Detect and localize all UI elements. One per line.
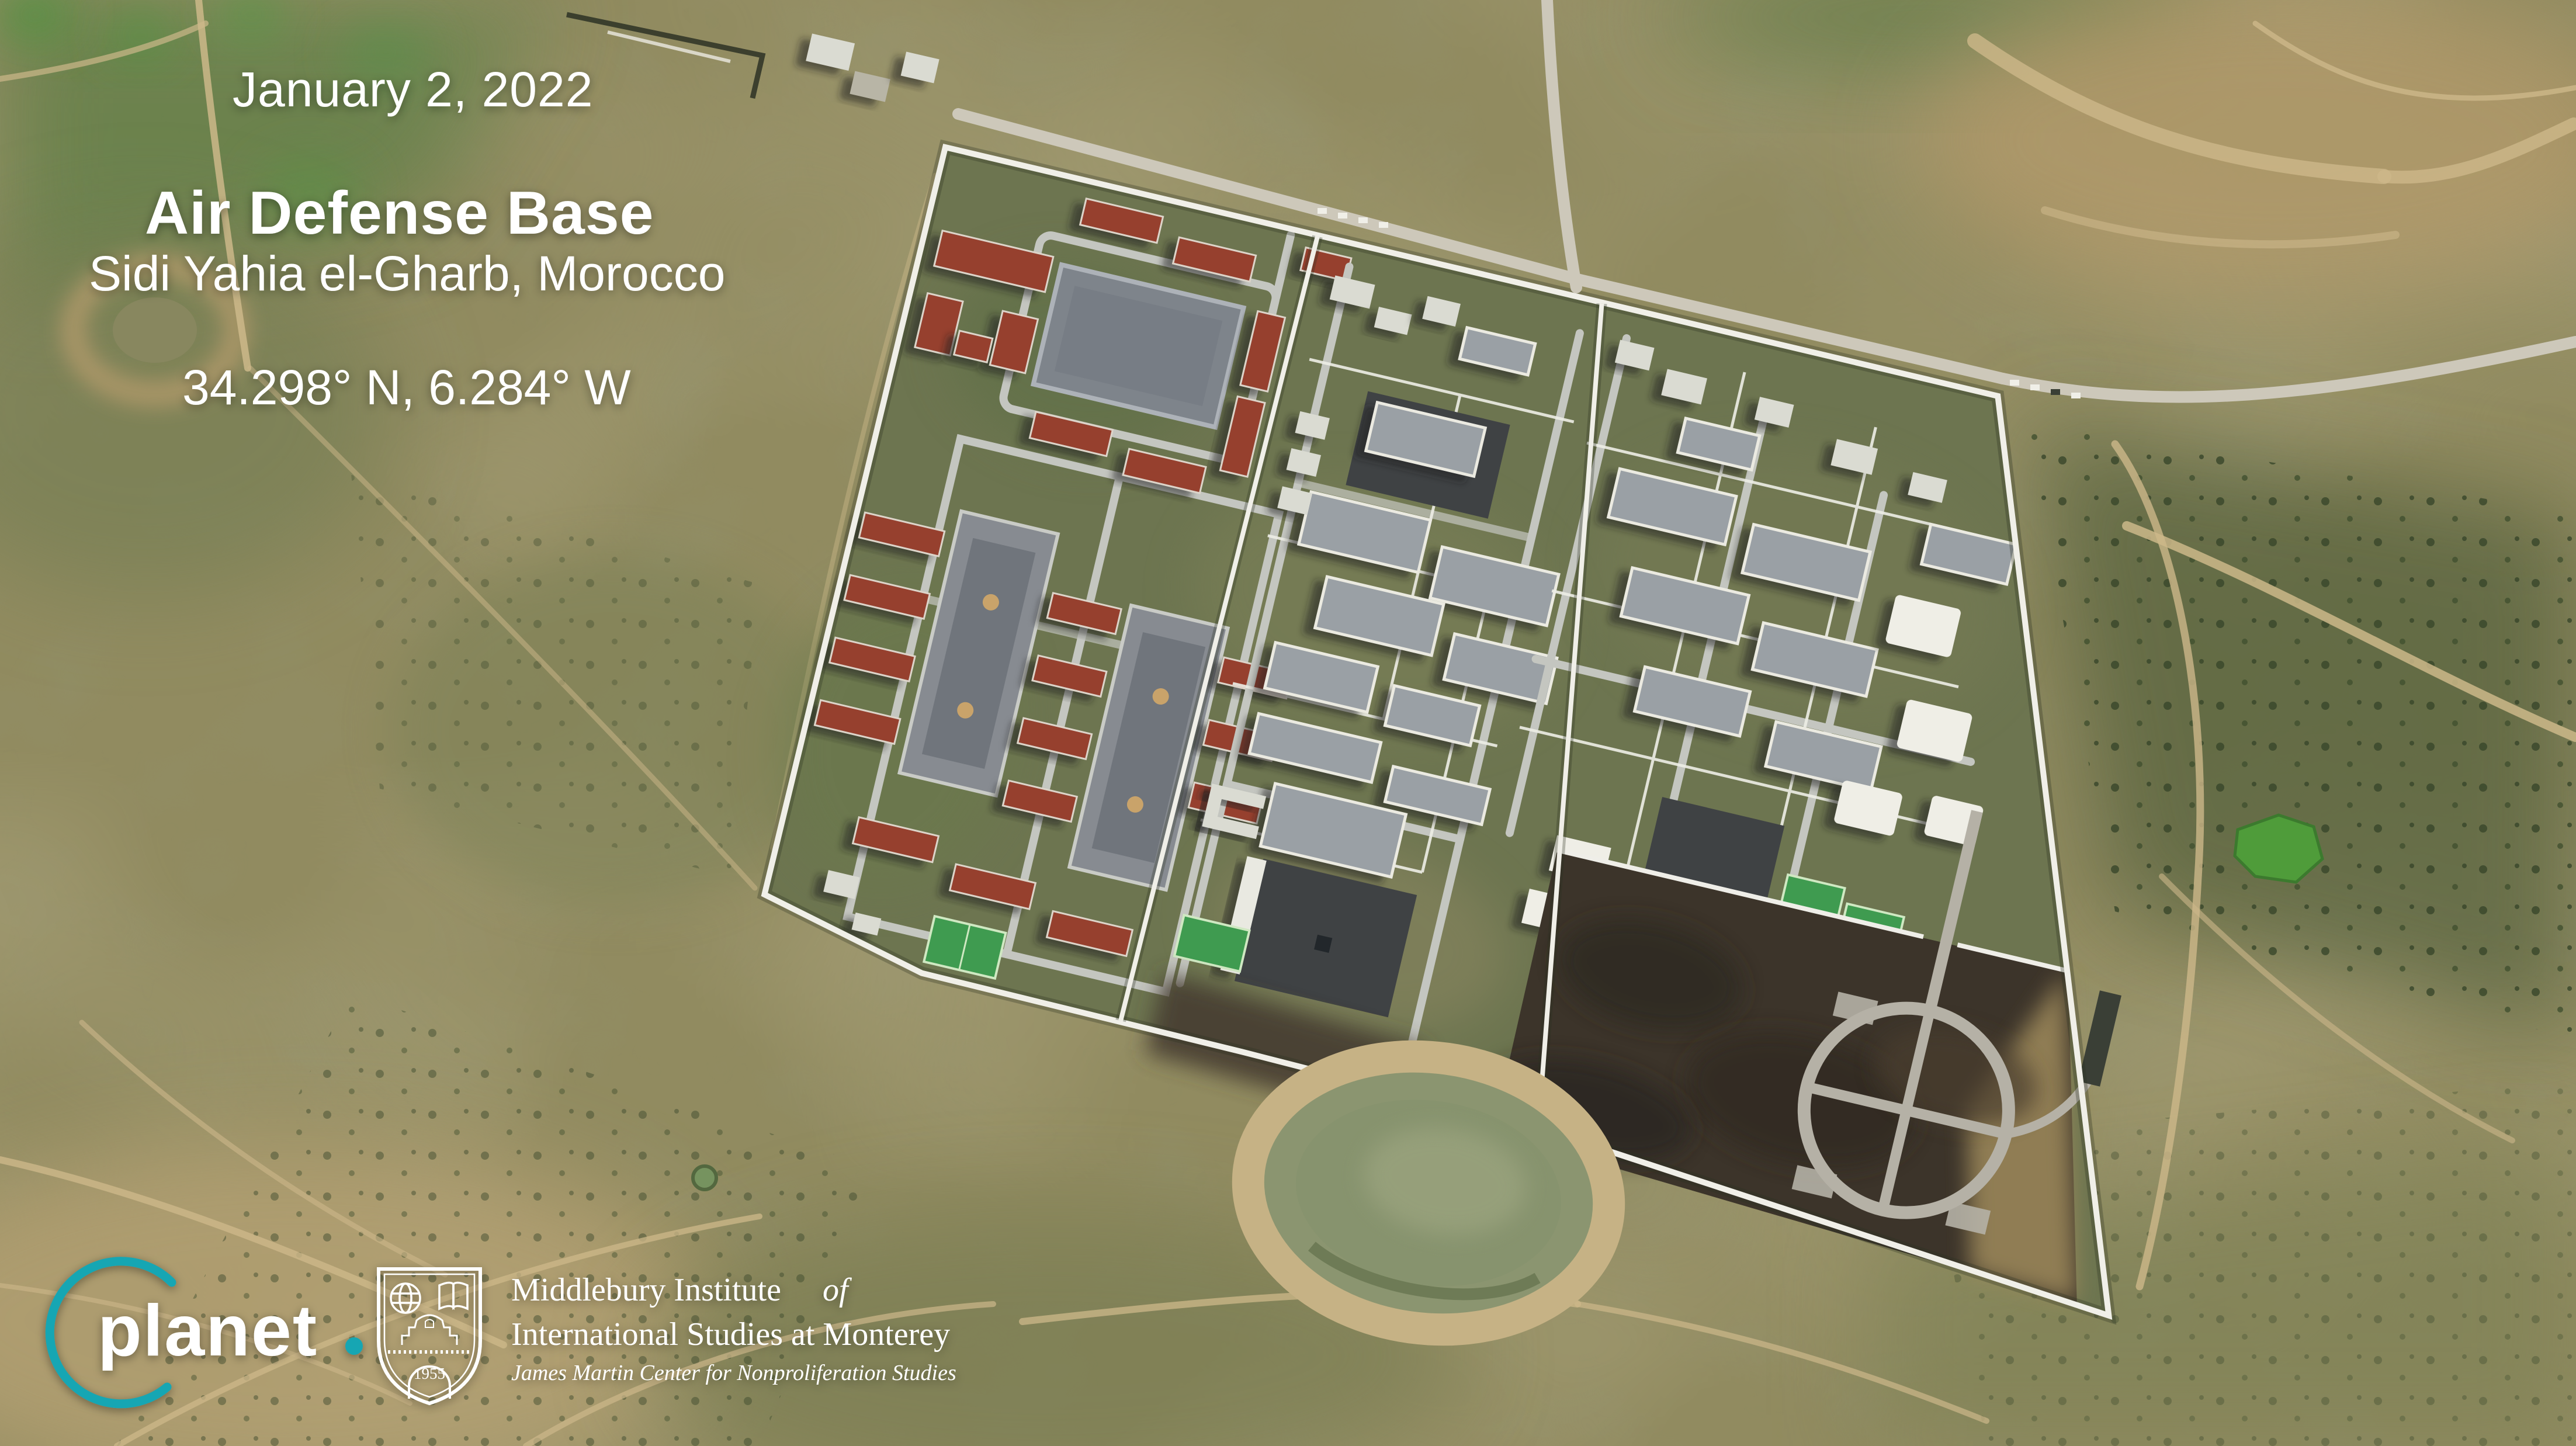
location-label: Sidi Yahia el-Gharb, Morocco (89, 246, 725, 301)
institute-name-line1: Middlebury Institute (511, 1272, 781, 1308)
satellite-annotation-graphic: January 2, 2022 Air Defense Base Sidi Ya… (0, 0, 2576, 1446)
date-label: January 2, 2022 (233, 62, 593, 117)
shield-year-label: 1955 (414, 1365, 445, 1382)
coordinates-label: 34.298° N, 6.284° W (182, 360, 631, 415)
small-pond (693, 1166, 716, 1190)
institute-name-line2: International Studies at Monterey (511, 1316, 950, 1353)
center-name-line: James Martin Center for Nonproliferation… (511, 1361, 956, 1385)
planet-wordmark: planet (98, 1291, 318, 1371)
institute-name-line1-of: of (823, 1272, 852, 1308)
planet-dot-icon (345, 1337, 363, 1355)
page-title: Air Defense Base (145, 179, 654, 247)
